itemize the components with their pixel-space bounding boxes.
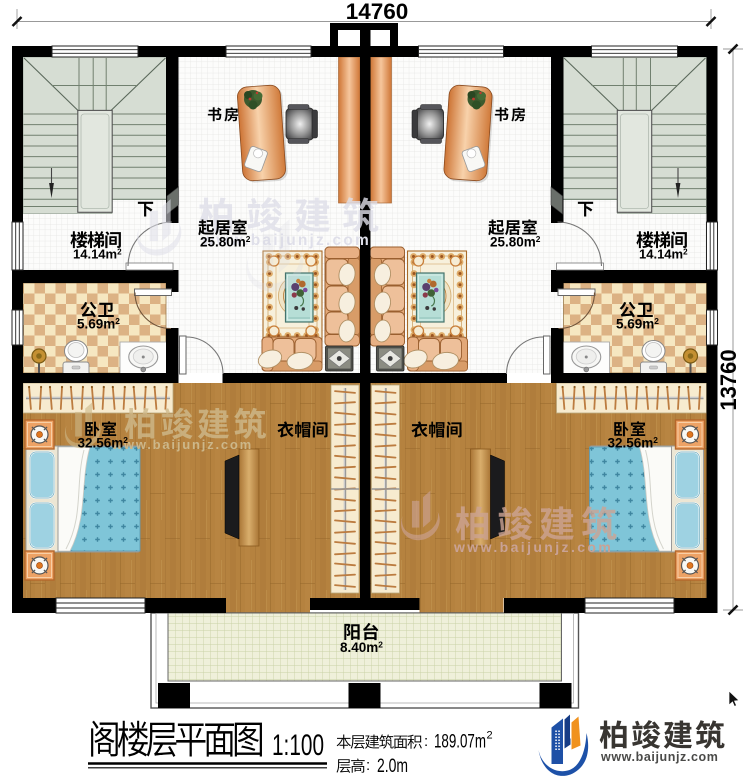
svg-text:32.56m2: 32.56m2: [78, 435, 129, 450]
svg-text:32.56m2: 32.56m2: [608, 435, 659, 450]
svg-text:www.baijunjz.com: www.baijunjz.com: [453, 539, 613, 555]
svg-text:14760: 14760: [346, 0, 409, 24]
svg-text:14.14m2: 14.14m2: [639, 247, 688, 262]
svg-text:www.baijunjz.com: www.baijunjz.com: [600, 750, 718, 764]
svg-text:5.69m2: 5.69m2: [77, 316, 120, 331]
svg-text:13760: 13760: [716, 349, 741, 410]
svg-text:1:100: 1:100: [272, 729, 324, 762]
svg-text:14.14m2: 14.14m2: [73, 247, 122, 262]
svg-text:5.69m2: 5.69m2: [616, 316, 659, 331]
svg-text::: :: [424, 733, 428, 750]
svg-text:2: 2: [487, 730, 493, 742]
svg-text:8.40m2: 8.40m2: [340, 640, 383, 655]
svg-text::: :: [366, 757, 370, 774]
svg-text:25.80m2: 25.80m2: [490, 234, 541, 249]
svg-text:25.80m2: 25.80m2: [200, 234, 251, 249]
svg-text:189.07m: 189.07m: [434, 732, 486, 753]
svg-text:www.baijunjz.com: www.baijunjz.com: [111, 437, 253, 452]
svg-text:2.0m: 2.0m: [377, 756, 408, 777]
